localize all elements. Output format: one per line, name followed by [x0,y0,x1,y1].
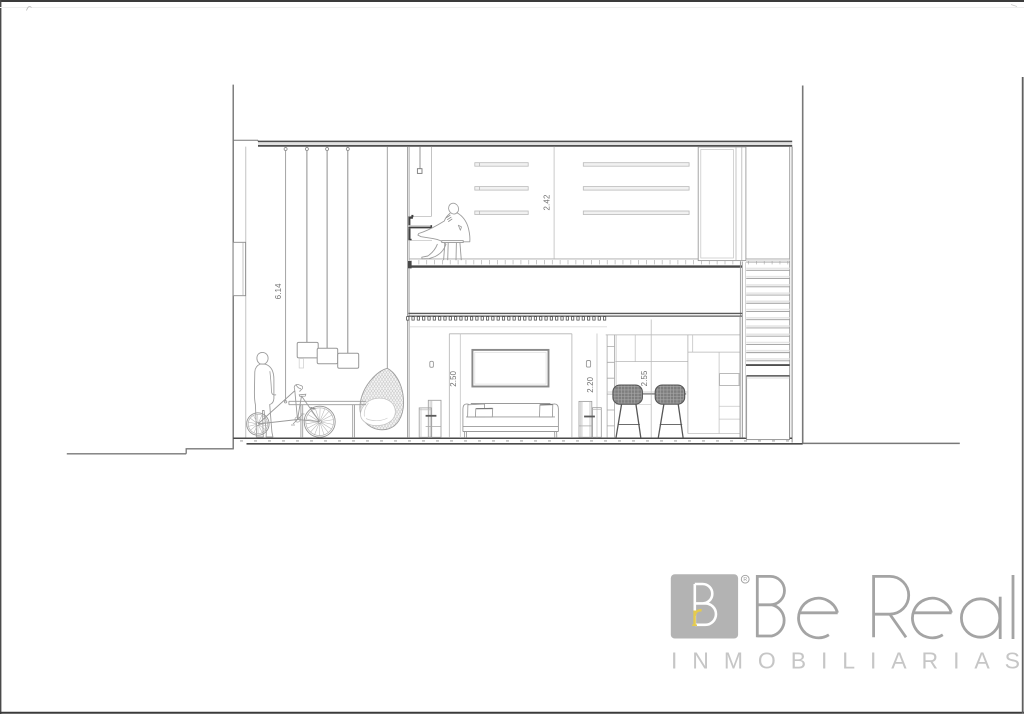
svg-text:2.50: 2.50 [449,370,458,386]
svg-text:2.55: 2.55 [640,370,649,386]
svg-text:2.42: 2.42 [543,195,552,211]
svg-text:2.20: 2.20 [586,376,595,392]
svg-text:6.14: 6.14 [274,283,283,299]
svg-text:R: R [743,577,747,583]
